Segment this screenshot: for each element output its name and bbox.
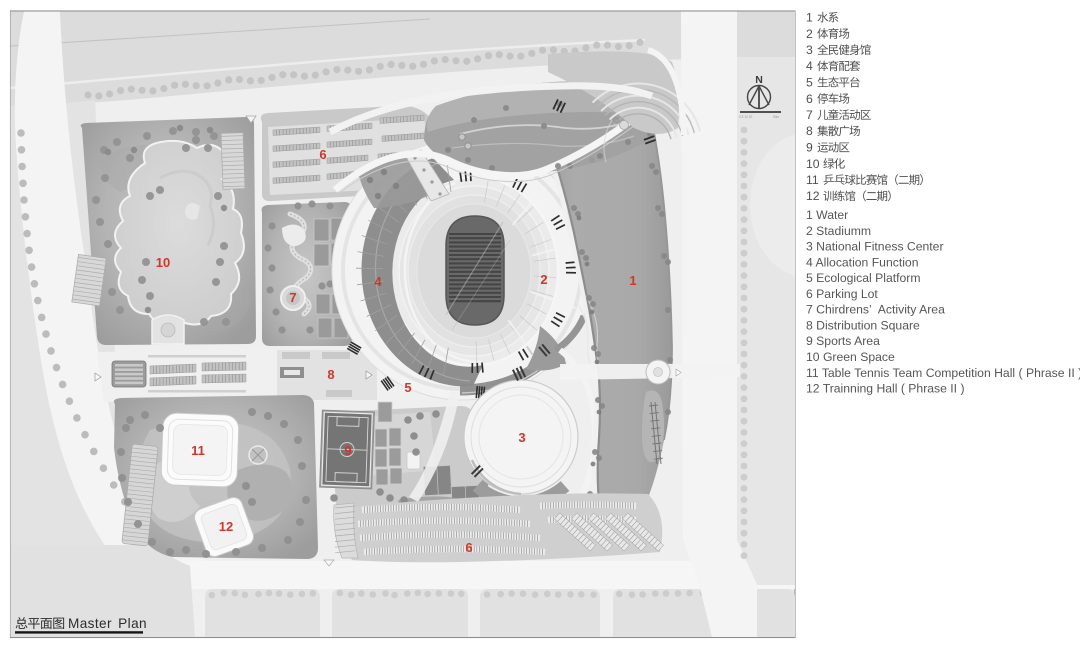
svg-text:2: 2 xyxy=(540,272,547,287)
svg-text:2 Stadiumm: 2 Stadiumm xyxy=(806,224,871,238)
svg-text:5: 5 xyxy=(404,380,411,395)
svg-text:12 Trainning Hall ( Phrase II: 12 Trainning Hall ( Phrase II ) xyxy=(806,382,965,396)
svg-text:1 Water: 1 Water xyxy=(806,208,848,222)
svg-text:7 Chirdrens’ Activity Area: 7 Chirdrens’ Activity Area xyxy=(806,303,945,317)
svg-text:8 Distribution Square: 8 Distribution Square xyxy=(806,319,920,333)
svg-text:6: 6 xyxy=(465,540,472,555)
svg-text:9: 9 xyxy=(344,443,351,458)
svg-text:2: 2 xyxy=(806,27,813,41)
svg-text:10: 10 xyxy=(806,157,820,171)
svg-text:6 Parking Lot: 6 Parking Lot xyxy=(806,287,878,301)
svg-text:6: 6 xyxy=(319,147,326,162)
svg-text:6: 6 xyxy=(806,92,813,106)
svg-text:4: 4 xyxy=(374,274,382,289)
svg-text:3: 3 xyxy=(518,430,525,445)
svg-text:3: 3 xyxy=(806,43,813,57)
svg-text:11 Table Tennis Team Competiti: 11 Table Tennis Team Competition Hall ( … xyxy=(806,366,1080,380)
svg-text:9: 9 xyxy=(806,141,813,155)
svg-text:9 Sports Area: 9 Sports Area xyxy=(806,334,880,348)
svg-text:0 5 10 20: 0 5 10 20 xyxy=(739,115,753,119)
svg-text:50m: 50m xyxy=(773,115,780,119)
svg-text:5 Ecological Platform: 5 Ecological Platform xyxy=(806,271,920,285)
svg-text:10 Green Space: 10 Green Space xyxy=(806,350,895,364)
svg-text:5: 5 xyxy=(806,76,813,90)
svg-text:3 National Fitness Center: 3 National Fitness Center xyxy=(806,240,944,254)
svg-text:7: 7 xyxy=(806,108,813,122)
svg-text:8: 8 xyxy=(806,124,813,138)
svg-text:12: 12 xyxy=(806,189,820,203)
svg-text:4: 4 xyxy=(806,59,813,73)
svg-text:8: 8 xyxy=(327,367,334,382)
svg-text:12: 12 xyxy=(219,519,233,534)
svg-text:1: 1 xyxy=(806,11,813,25)
svg-text:11: 11 xyxy=(191,443,205,458)
svg-text:4 Allocation Function: 4 Allocation Function xyxy=(806,255,918,269)
svg-text:10: 10 xyxy=(156,255,170,270)
svg-text:N: N xyxy=(755,74,763,86)
svg-text:11: 11 xyxy=(806,173,819,187)
svg-text:1: 1 xyxy=(629,273,636,288)
svg-text:7: 7 xyxy=(289,290,296,305)
svg-text:Master Plan: Master Plan xyxy=(68,616,147,631)
